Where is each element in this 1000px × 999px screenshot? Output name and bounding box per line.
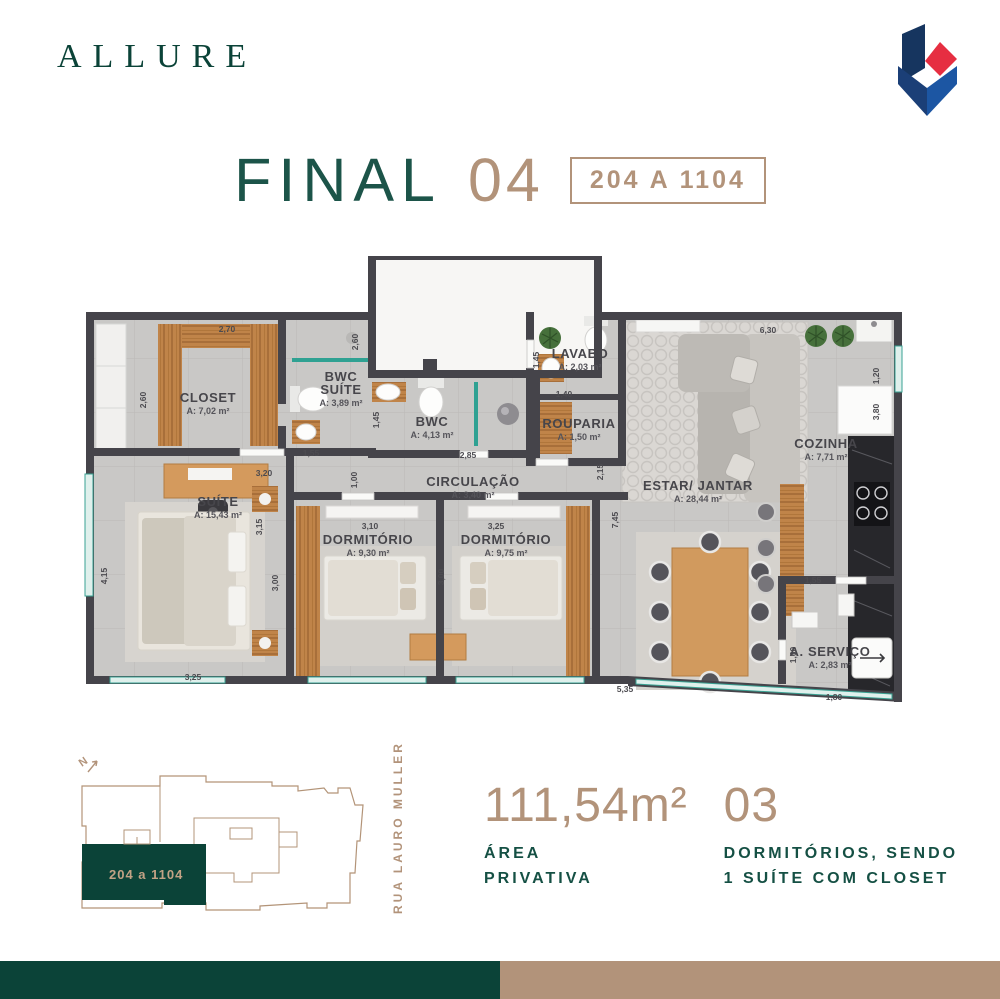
stat-bedrooms-label: DORMITÓRIOS, SENDO 1 SUÍTE COM CLOSET bbox=[724, 842, 958, 892]
stat-area-label-line1: ÁREA bbox=[484, 842, 688, 867]
room-area: A: 7,02 m² bbox=[186, 406, 229, 416]
plan-title: FINAL 04 204 A 1104 bbox=[0, 150, 1000, 211]
room-area: A: 4,13 m² bbox=[410, 430, 453, 440]
svg-text:N: N bbox=[77, 755, 90, 769]
room-label: ROUPARIA bbox=[542, 416, 615, 431]
stats: 111,54m² ÁREA PRIVATIVA 03 DORMITÓRIOS, … bbox=[484, 782, 958, 892]
stat-area-label-line2: PRIVATIVA bbox=[484, 867, 688, 892]
room-label: A. SERVIÇO bbox=[790, 644, 871, 659]
footer-bar-green bbox=[0, 961, 500, 999]
developer-logo-icon bbox=[868, 20, 968, 124]
desk-accessory bbox=[188, 468, 232, 480]
room-area: A: 3,89 m² bbox=[319, 398, 362, 408]
dimension-label: 1,20 bbox=[871, 367, 881, 384]
room-label: BWCSUÍTE bbox=[320, 369, 361, 397]
plan-title-final: FINAL bbox=[234, 150, 442, 211]
room-area: A: 2,03 m² bbox=[558, 362, 601, 372]
brand-logo: ALLURE bbox=[57, 38, 257, 76]
dimension-label: 1,55 bbox=[303, 448, 320, 458]
dimension-label: 1,00 bbox=[349, 471, 359, 488]
room-area: A: 9,30 m² bbox=[346, 548, 389, 558]
tv-bench bbox=[636, 320, 700, 332]
dimension-label: 6,30 bbox=[760, 325, 777, 335]
floor-plan: CLOSETA: 7,02 m²BWCSUÍTEA: 3,89 m²BWCA: … bbox=[80, 250, 914, 732]
dimension-label: 2,60 bbox=[350, 333, 360, 350]
dimension-label: 5,35 bbox=[617, 684, 634, 694]
dorm1-wardrobe bbox=[296, 506, 320, 676]
dimension-label: 3,00 bbox=[270, 574, 280, 591]
unit-highlight-label: 204 a 1104 bbox=[109, 867, 183, 882]
dimension-label: 2,70 bbox=[219, 324, 236, 334]
north-arrow-icon: N bbox=[77, 755, 97, 772]
stat-area: 111,54m² ÁREA PRIVATIVA bbox=[484, 782, 688, 892]
room-label: CIRCULAÇÃO bbox=[426, 474, 519, 489]
stove bbox=[854, 482, 890, 526]
site-key-plan: N 204 a 1104 RUA LAURO MULLER bbox=[52, 742, 448, 952]
room-label: CLOSET bbox=[180, 390, 236, 405]
room-label: COZINHA bbox=[794, 436, 857, 451]
room-label: BWC bbox=[416, 414, 449, 429]
dimension-label: 3,20 bbox=[256, 468, 273, 478]
street-label: RUA LAURO MULLER bbox=[391, 742, 405, 914]
footer-bar-tan bbox=[500, 961, 1000, 999]
room-area: A: 2,83 m² bbox=[808, 660, 851, 670]
service-sink bbox=[792, 612, 818, 628]
plant-icon bbox=[805, 325, 827, 347]
fridge bbox=[838, 386, 892, 434]
dorm2-wardrobe bbox=[566, 506, 590, 676]
dimension-label: 2,60 bbox=[138, 391, 148, 408]
footer-bar bbox=[0, 961, 1000, 999]
stat-bedrooms-value: 03 bbox=[724, 782, 958, 830]
dimension-label: 7,45 bbox=[610, 511, 620, 528]
room-area: A: 15,43 m² bbox=[194, 510, 242, 520]
dimension-label: 2,15 bbox=[595, 463, 605, 480]
page: { "brand": { "logo_text": "ALLURE" }, "t… bbox=[0, 0, 1000, 999]
dimension-label: 1,45 bbox=[371, 411, 381, 428]
unit-highlight: 204 a 1104 bbox=[82, 830, 206, 905]
dimension-label: 4,15 bbox=[99, 567, 109, 584]
dimension-label: 1,80 bbox=[826, 692, 843, 702]
stat-area-label: ÁREA PRIVATIVA bbox=[484, 842, 688, 892]
plan-title-number: 04 bbox=[468, 150, 544, 211]
dimension-label: 1,45 bbox=[531, 351, 541, 368]
dimension-label: 1,55 bbox=[805, 575, 822, 585]
units-range-badge: 204 A 1104 bbox=[570, 157, 766, 204]
dimension-label: 1,40 bbox=[556, 389, 573, 399]
room-label: ESTAR/ JANTAR bbox=[643, 478, 753, 493]
dimension-label: 2,85 bbox=[460, 450, 477, 460]
bar-stools bbox=[757, 503, 775, 593]
room-label: SUÍTE bbox=[197, 494, 238, 509]
dimension-label: 1,60 bbox=[788, 646, 798, 663]
dimension-label: 3,25 bbox=[488, 521, 505, 531]
dimension-label: 3,10 bbox=[362, 521, 379, 531]
closet-white-unit bbox=[96, 324, 126, 450]
dining-table bbox=[672, 548, 748, 676]
room-label: DORMITÓRIO bbox=[461, 532, 552, 547]
stat-bedrooms: 03 DORMITÓRIOS, SENDO 1 SUÍTE COM CLOSET bbox=[724, 782, 958, 892]
room-area: A: 1,50 m² bbox=[557, 432, 600, 442]
plant-icon bbox=[832, 325, 854, 347]
stat-area-value: 111,54m² bbox=[484, 782, 688, 830]
room-area: A: 28,44 m² bbox=[674, 494, 722, 504]
dimension-label: 3,00 bbox=[436, 568, 446, 585]
dimension-label: 3,80 bbox=[871, 403, 881, 420]
stat-bedrooms-label-line2: 1 SUÍTE COM CLOSET bbox=[724, 867, 958, 892]
room-label: LAVABO bbox=[552, 346, 609, 361]
room-area: A: 7,71 m² bbox=[804, 452, 847, 462]
dimension-label: 3,15 bbox=[254, 518, 264, 535]
stat-bedrooms-label-line1: DORMITÓRIOS, SENDO bbox=[724, 842, 958, 867]
dimension-label: 3,25 bbox=[185, 672, 202, 682]
suite-bed bbox=[138, 512, 250, 650]
room-area: A: 9,75 m² bbox=[484, 548, 527, 558]
room-area: A: 3,40 m² bbox=[451, 490, 494, 500]
room-label: DORMITÓRIO bbox=[323, 532, 414, 547]
